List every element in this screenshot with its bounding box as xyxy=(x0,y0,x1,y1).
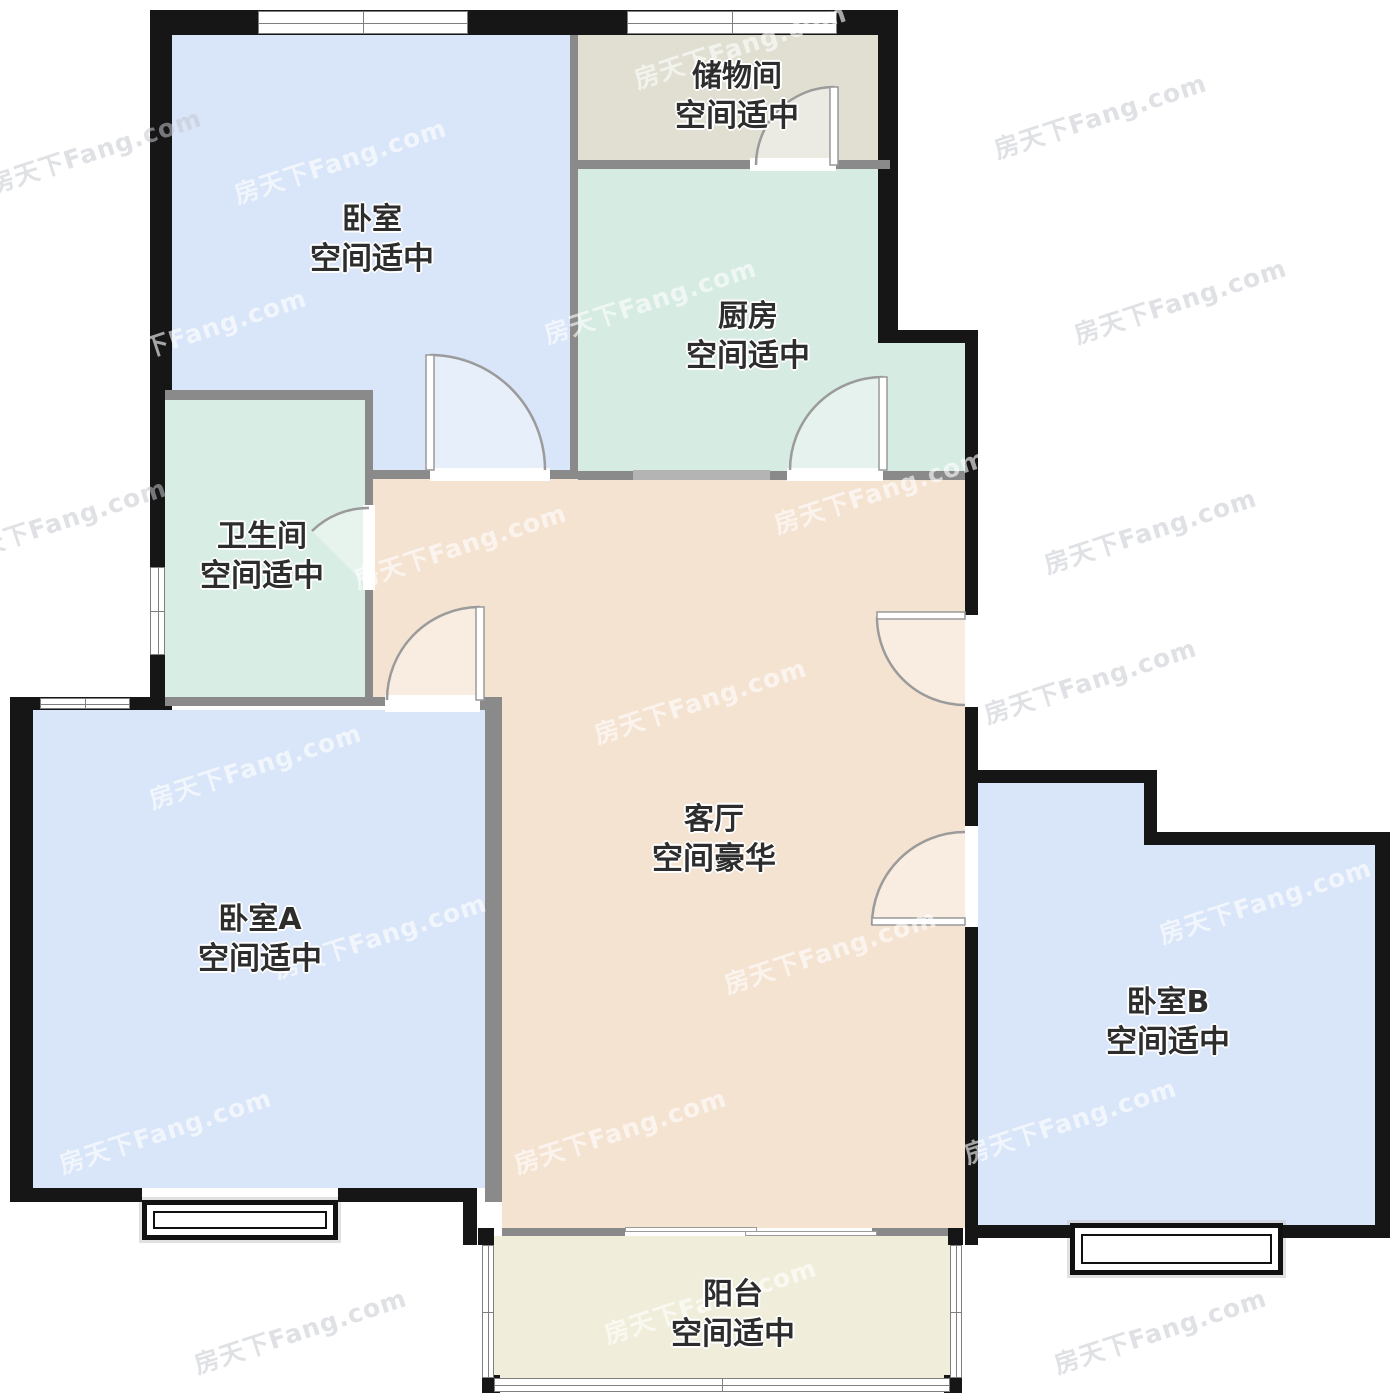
wall xyxy=(965,925,978,1245)
window-divider xyxy=(363,12,364,33)
room-living xyxy=(373,479,965,697)
window xyxy=(494,1378,950,1392)
room-label-bedroom-b: 卧室B空间适中 xyxy=(1106,984,1230,1062)
wall xyxy=(965,783,978,828)
window xyxy=(150,567,165,655)
wall xyxy=(485,697,502,1202)
door-opening xyxy=(363,505,375,590)
room-name: 卧室B xyxy=(1106,984,1230,1022)
wall xyxy=(10,697,33,1202)
wall xyxy=(872,1228,948,1236)
room-label-storage: 储物间空间适中 xyxy=(675,58,799,136)
watermark: 房天下Fang.com xyxy=(0,469,171,572)
wall xyxy=(502,1228,625,1236)
watermark: 房天下Fang.com xyxy=(1049,1279,1271,1382)
room-label-bathroom: 卫生间空间适中 xyxy=(200,518,324,596)
floor-plan: 房天下Fang.com房天下Fang.com房天下Fang.com房天下Fang… xyxy=(0,0,1393,1400)
window xyxy=(950,1245,962,1378)
room-label-kitchen: 厨房空间适中 xyxy=(686,298,810,376)
window xyxy=(258,11,468,34)
wall xyxy=(570,165,578,471)
wall xyxy=(948,1228,963,1245)
bay-window-inner-frame xyxy=(1081,1234,1272,1264)
wall xyxy=(10,1188,142,1202)
door-opening xyxy=(750,158,836,171)
wall xyxy=(373,470,430,479)
wall xyxy=(463,1188,477,1245)
watermark: 房天下Fang.com xyxy=(1069,249,1291,352)
room-space-grade: 空间适中 xyxy=(198,939,322,979)
window-divider xyxy=(151,611,164,612)
room-space-grade: 空间豪华 xyxy=(652,839,776,879)
room-name: 卫生间 xyxy=(200,518,324,556)
wall xyxy=(965,330,978,617)
room-name: 卧室A xyxy=(198,901,322,939)
wall xyxy=(550,470,578,479)
room-space-grade: 空间适中 xyxy=(675,96,799,136)
room-space-grade: 空间适中 xyxy=(1106,1022,1230,1062)
sliding-door-panel xyxy=(745,1231,877,1236)
room-space-grade: 空间适中 xyxy=(686,336,810,376)
wall xyxy=(338,1188,477,1202)
door-opening xyxy=(965,826,978,927)
room-label-living: 客厅空间豪华 xyxy=(652,801,776,879)
wall xyxy=(165,390,373,400)
watermark: 房天下Fang.com xyxy=(189,1279,411,1382)
room-space-grade: 空间适中 xyxy=(310,239,434,279)
wall xyxy=(965,770,1157,783)
room-label-bedroom-a: 卧室A空间适中 xyxy=(198,901,322,979)
room-bedroom-top xyxy=(373,390,570,470)
wall xyxy=(878,10,898,343)
wall xyxy=(150,10,172,395)
wall xyxy=(478,1228,494,1245)
window xyxy=(482,1245,494,1378)
door-opening xyxy=(430,468,550,481)
wall xyxy=(165,697,385,706)
door-opening xyxy=(385,695,480,712)
room-label-bedroom-top: 卧室空间适中 xyxy=(310,201,434,279)
window-divider xyxy=(722,1379,723,1391)
bay-window xyxy=(1070,1223,1283,1275)
window-divider xyxy=(483,1312,493,1313)
wall xyxy=(1375,832,1390,1238)
window xyxy=(40,698,130,709)
watermark: 房天下Fang.com xyxy=(1039,479,1261,582)
room-space-grade: 空间适中 xyxy=(671,1314,795,1354)
wall xyxy=(570,35,578,165)
sliding-door-panel xyxy=(625,1227,757,1232)
room-name: 卧室 xyxy=(310,201,434,239)
wall xyxy=(978,1225,1070,1238)
room-space-grade: 空间适中 xyxy=(200,556,324,596)
wall xyxy=(578,471,633,480)
room-living xyxy=(502,697,965,1228)
door-opening xyxy=(787,468,883,481)
room-name: 厨房 xyxy=(686,298,810,336)
room-name: 储物间 xyxy=(675,58,799,96)
wall xyxy=(1144,832,1390,845)
pass-window xyxy=(633,470,770,480)
room-name: 阳台 xyxy=(671,1276,795,1314)
bay-window-inner-frame xyxy=(153,1211,327,1229)
room-name: 客厅 xyxy=(652,801,776,839)
room-label-balcony: 阳台空间适中 xyxy=(671,1276,795,1354)
room-kitchen xyxy=(878,343,965,471)
bay-window xyxy=(142,1200,338,1240)
wall xyxy=(1283,1225,1375,1238)
window-divider xyxy=(85,699,86,708)
door-opening xyxy=(965,615,978,707)
watermark: 房天下Fang.com xyxy=(989,64,1211,167)
wall xyxy=(770,471,787,480)
wall xyxy=(883,471,965,480)
watermark: 房天下Fang.com xyxy=(979,629,1201,732)
window-divider xyxy=(732,12,733,33)
window xyxy=(627,11,837,34)
wall xyxy=(578,160,890,169)
window-divider xyxy=(951,1312,961,1313)
